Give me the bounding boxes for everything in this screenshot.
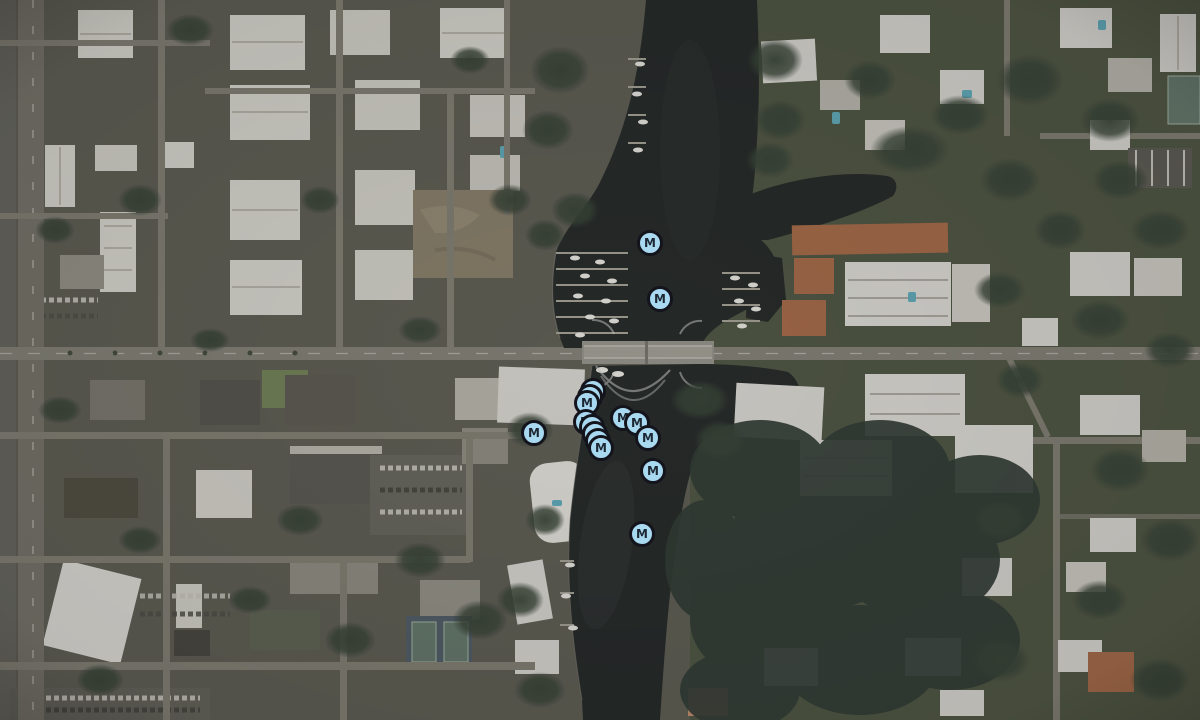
mooring-marker[interactable]: M <box>588 435 614 461</box>
mooring-marker-label: M <box>581 397 593 409</box>
mooring-marker[interactable]: M <box>637 230 663 256</box>
mooring-marker-label: M <box>528 427 540 439</box>
satellite-map-canvas[interactable]: M M M M M M M M M M M <box>0 0 1200 720</box>
mooring-marker[interactable]: M <box>635 425 661 451</box>
markers-layer: M M M M M M M M M M M <box>0 0 1200 720</box>
mooring-marker[interactable]: M <box>521 420 547 446</box>
mooring-marker-label: M <box>595 442 607 454</box>
mooring-marker-label: M <box>654 293 666 305</box>
mooring-marker-label: M <box>636 528 648 540</box>
map-application: M M M M M M M M M M M <box>0 0 1200 720</box>
mooring-marker-label: M <box>644 237 656 249</box>
mooring-marker[interactable]: M <box>640 458 666 484</box>
mooring-marker-label: M <box>647 465 659 477</box>
mooring-marker[interactable]: M <box>647 286 673 312</box>
mooring-marker[interactable]: M <box>629 521 655 547</box>
mooring-marker-label: M <box>642 432 654 444</box>
